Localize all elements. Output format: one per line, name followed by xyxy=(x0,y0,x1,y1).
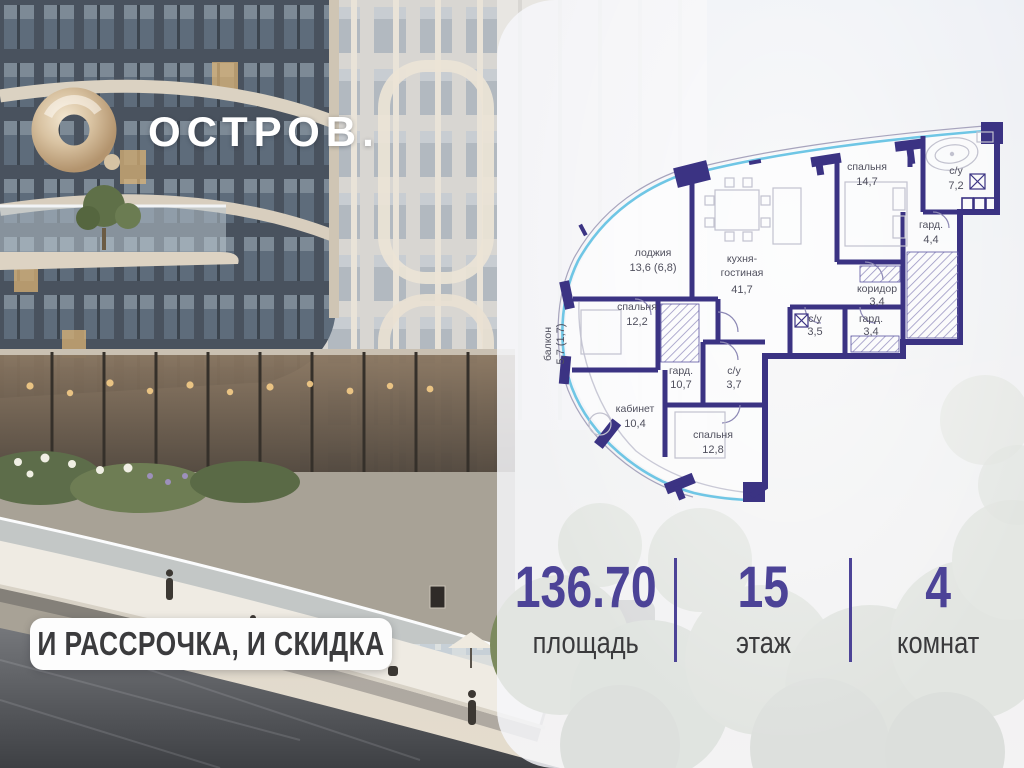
promo-badge-label: И РАССРОЧКА, И СКИДКА xyxy=(37,625,384,663)
apartment-ad-banner: спальня 14,7 с/у 7,2 гард. 4,4 коридор 3… xyxy=(0,0,1024,768)
room-balcony-name: балкон xyxy=(542,327,554,361)
room-bath3-name: с/у xyxy=(727,365,741,377)
room-bath1-area: 7,2 xyxy=(948,180,963,192)
room-bath3-area: 3,7 xyxy=(726,379,741,391)
room-loggia-name: лоджия xyxy=(635,247,672,259)
room-bedroom1-area: 14,7 xyxy=(856,176,877,188)
stat-area: 136.70 площадь xyxy=(497,548,674,672)
room-bedroom3-area: 12,8 xyxy=(702,444,723,456)
room-bath2-name: с/у xyxy=(808,313,822,325)
room-bedroom2-area: 12,2 xyxy=(626,316,647,328)
room-wardrobe2-area: 3,4 xyxy=(863,326,878,338)
logo-text: ОСТРОВ. xyxy=(148,108,380,156)
stat-floor-value: 15 xyxy=(737,559,789,617)
room-kitchen-name-line2: гостиная xyxy=(721,267,764,279)
room-corridor-area: 3,4 xyxy=(869,296,884,308)
stat-rooms: 4 комнат xyxy=(852,548,1024,672)
room-bedroom1-name: спальня xyxy=(847,161,887,173)
menu-signboard xyxy=(430,586,445,608)
room-wardrobe3-area: 10,7 xyxy=(670,379,691,391)
stat-rooms-label: комнат xyxy=(897,625,979,661)
stat-floor: 15 этаж xyxy=(677,548,849,672)
room-bedroom3-name: спальня xyxy=(693,429,733,441)
room-kitchen-name-line1: кухня- xyxy=(727,253,758,265)
restaurant-podium xyxy=(0,352,515,474)
stats-row: 136.70 площадь 15 этаж 4 комнат xyxy=(497,548,1024,672)
room-loggia-area: 13,6 (6,8) xyxy=(629,262,676,274)
logo: ОСТРОВ. xyxy=(28,86,380,178)
room-bath1-name: с/у xyxy=(949,165,963,177)
dark-tower xyxy=(0,0,336,398)
stat-area-label: площадь xyxy=(533,625,639,661)
room-bedroom2-name: спальня xyxy=(617,301,657,313)
room-study-name: кабинет xyxy=(616,403,655,415)
room-study-area: 10,4 xyxy=(624,418,645,430)
room-corridor-name: коридор xyxy=(857,283,897,295)
promo-badge: И РАССРОЧКА, И СКИДКА xyxy=(30,618,392,670)
room-kitchen-area: 41,7 xyxy=(731,284,752,296)
room-wardrobe2-name: гард. xyxy=(859,313,883,325)
stat-rooms-value: 4 xyxy=(925,559,951,617)
stat-area-value: 136.70 xyxy=(515,559,657,617)
room-balcony-area: 5,7 (1,7) xyxy=(555,324,567,365)
room-wardrobe1-area: 4,4 xyxy=(923,234,938,246)
logo-ring-icon xyxy=(28,86,128,178)
stat-floor-label: этаж xyxy=(736,625,791,661)
floor-plan: спальня 14,7 с/у 7,2 гард. 4,4 коридор 3… xyxy=(515,112,1015,532)
room-bath2-area: 3,5 xyxy=(807,326,822,338)
room-wardrobe1-name: гард. xyxy=(919,219,943,231)
room-wardrobe3-name: гард. xyxy=(669,365,693,377)
